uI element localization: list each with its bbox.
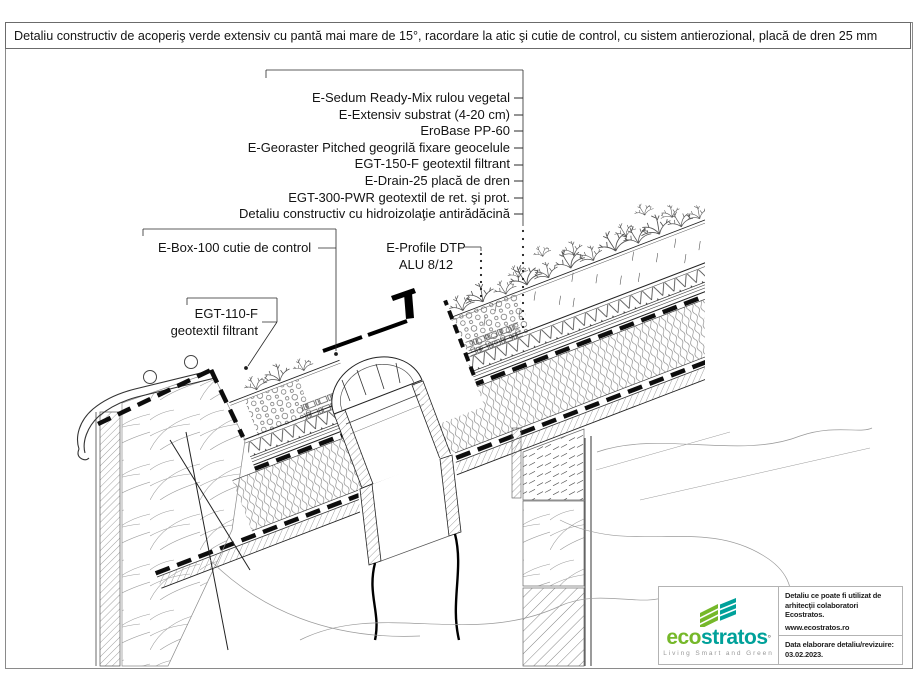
website-text: www.ecostratos.ro xyxy=(785,623,897,633)
usage-note: Detaliu ce poate fi utilizat de arhitecţ… xyxy=(779,587,902,636)
callout-control-box: E-Box-100 cutie de control xyxy=(158,240,311,257)
layer-label-list: E-Sedum Ready-Mix rulou vegetal E-Extens… xyxy=(180,90,510,223)
title-block: ecostratos° Living Smart and Green Detal… xyxy=(658,586,903,665)
wordmark-stratos: stratos xyxy=(701,626,768,649)
revision-label: Data elaborare detaliu/revizuire: xyxy=(785,640,897,650)
wordmark-eco: eco xyxy=(666,626,701,649)
layer-label: EGT-300-PWR geotextil de ret. şi prot. xyxy=(180,190,510,207)
wordmark-mark: ° xyxy=(768,633,771,643)
layer-label: E-Georaster Pitched geogrilă fixare geoc… xyxy=(180,140,510,157)
layer-label: Detaliu constructiv cu hidroizolaţie ant… xyxy=(180,206,510,223)
title-block-info: Detaliu ce poate fi utilizat de arhitecţ… xyxy=(778,587,902,664)
layer-label: E-Extensiv substrat (4-20 cm) xyxy=(180,107,510,124)
drawing-title-bar: Detaliu constructiv de acoperiş verde ex… xyxy=(5,22,911,49)
callout-geotextile-line2: geotextil filtrant xyxy=(130,323,258,340)
layer-label: E-Drain-25 placă de dren xyxy=(180,173,510,190)
layer-label: EGT-150-F geotextil filtrant xyxy=(180,156,510,173)
callout-geotextile: EGT-110-F geotextil filtrant xyxy=(130,306,258,339)
logo-tagline: Living Smart and Green xyxy=(663,650,773,657)
revision-date: 03.02.2023. xyxy=(785,650,897,660)
wall-section xyxy=(512,428,591,666)
drawing-sheet: Detaliu constructiv de acoperiş verde ex… xyxy=(0,0,920,690)
callout-alu-profile-line2: ALU 8/12 xyxy=(368,257,484,274)
revision-info: Data elaborare detaliu/revizuire: 03.02.… xyxy=(779,636,902,664)
callout-alu-profile-line1: E-Profile DTP xyxy=(368,240,484,257)
ecostratos-wordmark: ecostratos° xyxy=(666,628,770,648)
usage-note-line1: Detaliu ce poate fi utilizat de xyxy=(785,591,897,601)
callout-geotextile-line1: EGT-110-F xyxy=(130,306,258,323)
ecostratos-logo: ecostratos° Living Smart and Green xyxy=(659,587,778,664)
layer-label: EroBase PP-60 xyxy=(180,123,510,140)
ecostratos-chevron-icon xyxy=(696,595,742,627)
usage-note-line2: arhitecţii colaboratori Ecostratos. xyxy=(785,601,897,620)
callout-alu-profile: E-Profile DTP ALU 8/12 xyxy=(368,240,484,273)
layer-label: E-Sedum Ready-Mix rulou vegetal xyxy=(180,90,510,107)
parapet xyxy=(78,356,250,667)
drawing-title: Detaliu constructiv de acoperiş verde ex… xyxy=(14,29,877,43)
